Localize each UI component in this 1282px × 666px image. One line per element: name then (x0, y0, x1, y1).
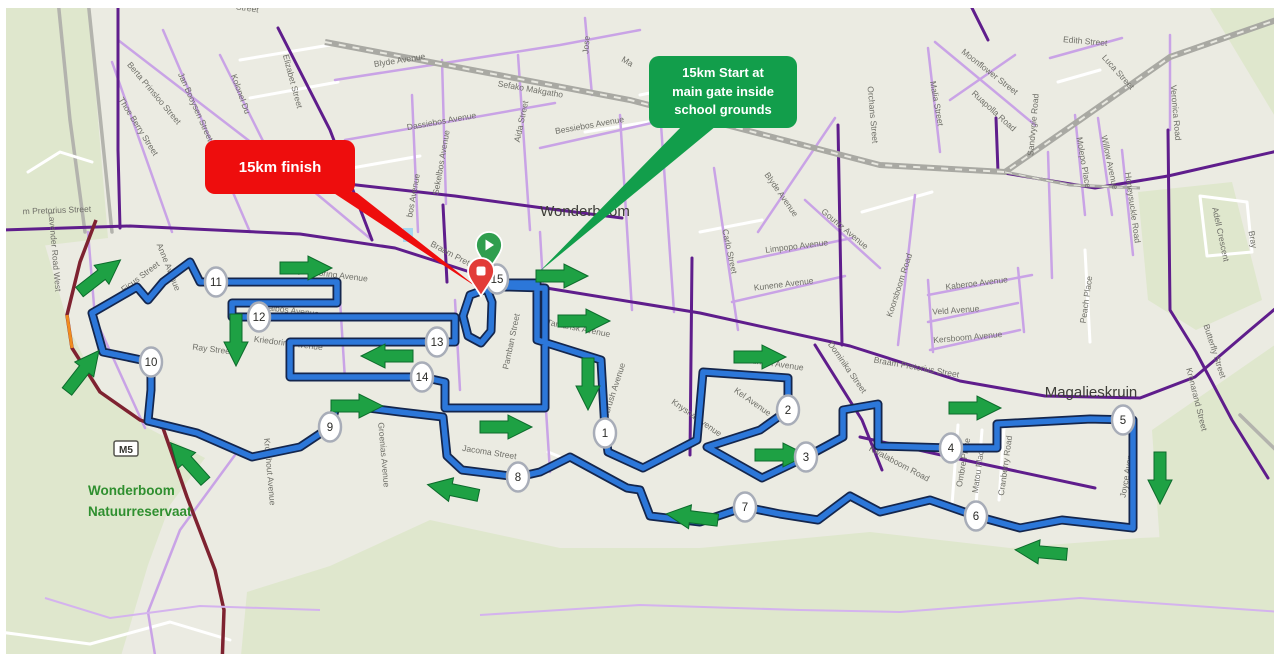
km-marker-number: 8 (515, 472, 521, 484)
km-marker-number: 9 (327, 422, 333, 434)
km-marker-number: 6 (973, 511, 979, 523)
km-marker-number: 1 (602, 428, 608, 440)
km-marker: 11 (205, 268, 227, 297)
finish-callout: 15km finish (205, 140, 355, 194)
km-marker: 9 (319, 413, 341, 442)
km-marker: 5 (1112, 406, 1134, 435)
km-marker-number: 14 (416, 372, 429, 384)
km-marker: 6 (965, 502, 987, 531)
km-marker: 4 (940, 434, 962, 463)
start-callout-line: main gate inside (655, 83, 791, 102)
km-marker-number: 12 (253, 312, 266, 324)
km-marker-number: 11 (210, 277, 222, 289)
km-marker-number: 4 (948, 443, 955, 455)
km-marker: 3 (795, 443, 817, 472)
route-map-canvas: M5StreetBerta Prinsloo StreetThoe Berry … (0, 0, 1282, 666)
km-marker-number: 10 (145, 357, 158, 369)
km-marker-number: 2 (785, 405, 791, 417)
km-marker: 10 (140, 348, 162, 377)
km-marker: 2 (777, 396, 799, 425)
m5-shield-label: M5 (119, 445, 133, 456)
km-marker: 8 (507, 463, 529, 492)
km-marker: 14 (411, 363, 433, 392)
stop-icon (477, 267, 486, 276)
nature-reserve-label: Natuurreservaat (88, 504, 192, 519)
start-callout-line: school grounds (655, 101, 791, 120)
start-callout-line: 15km Start at (655, 64, 791, 83)
dark-purple-road (690, 258, 692, 455)
km-marker: 1 (594, 419, 616, 448)
street-label: Jose (580, 35, 592, 54)
km-marker: 12 (248, 303, 270, 332)
km-marker: 13 (426, 328, 448, 357)
start-callout: 15km Start at main gate inside school gr… (649, 56, 797, 128)
km-marker-number: 3 (803, 452, 809, 464)
place-label: Magalieskruin (1045, 384, 1138, 401)
finish-callout-text: 15km finish (211, 159, 349, 176)
race-route-map-image: M5StreetBerta Prinsloo StreetThoe Berry … (0, 0, 1282, 666)
km-marker: 7 (734, 493, 756, 522)
km-marker-number: 7 (742, 502, 748, 514)
km-marker-number: 5 (1120, 415, 1126, 427)
nature-reserve-label: Wonderboom (88, 483, 175, 498)
map-layers: M5StreetBerta Prinsloo StreetThoe Berry … (0, 0, 1282, 666)
km-marker-number: 13 (431, 337, 444, 349)
